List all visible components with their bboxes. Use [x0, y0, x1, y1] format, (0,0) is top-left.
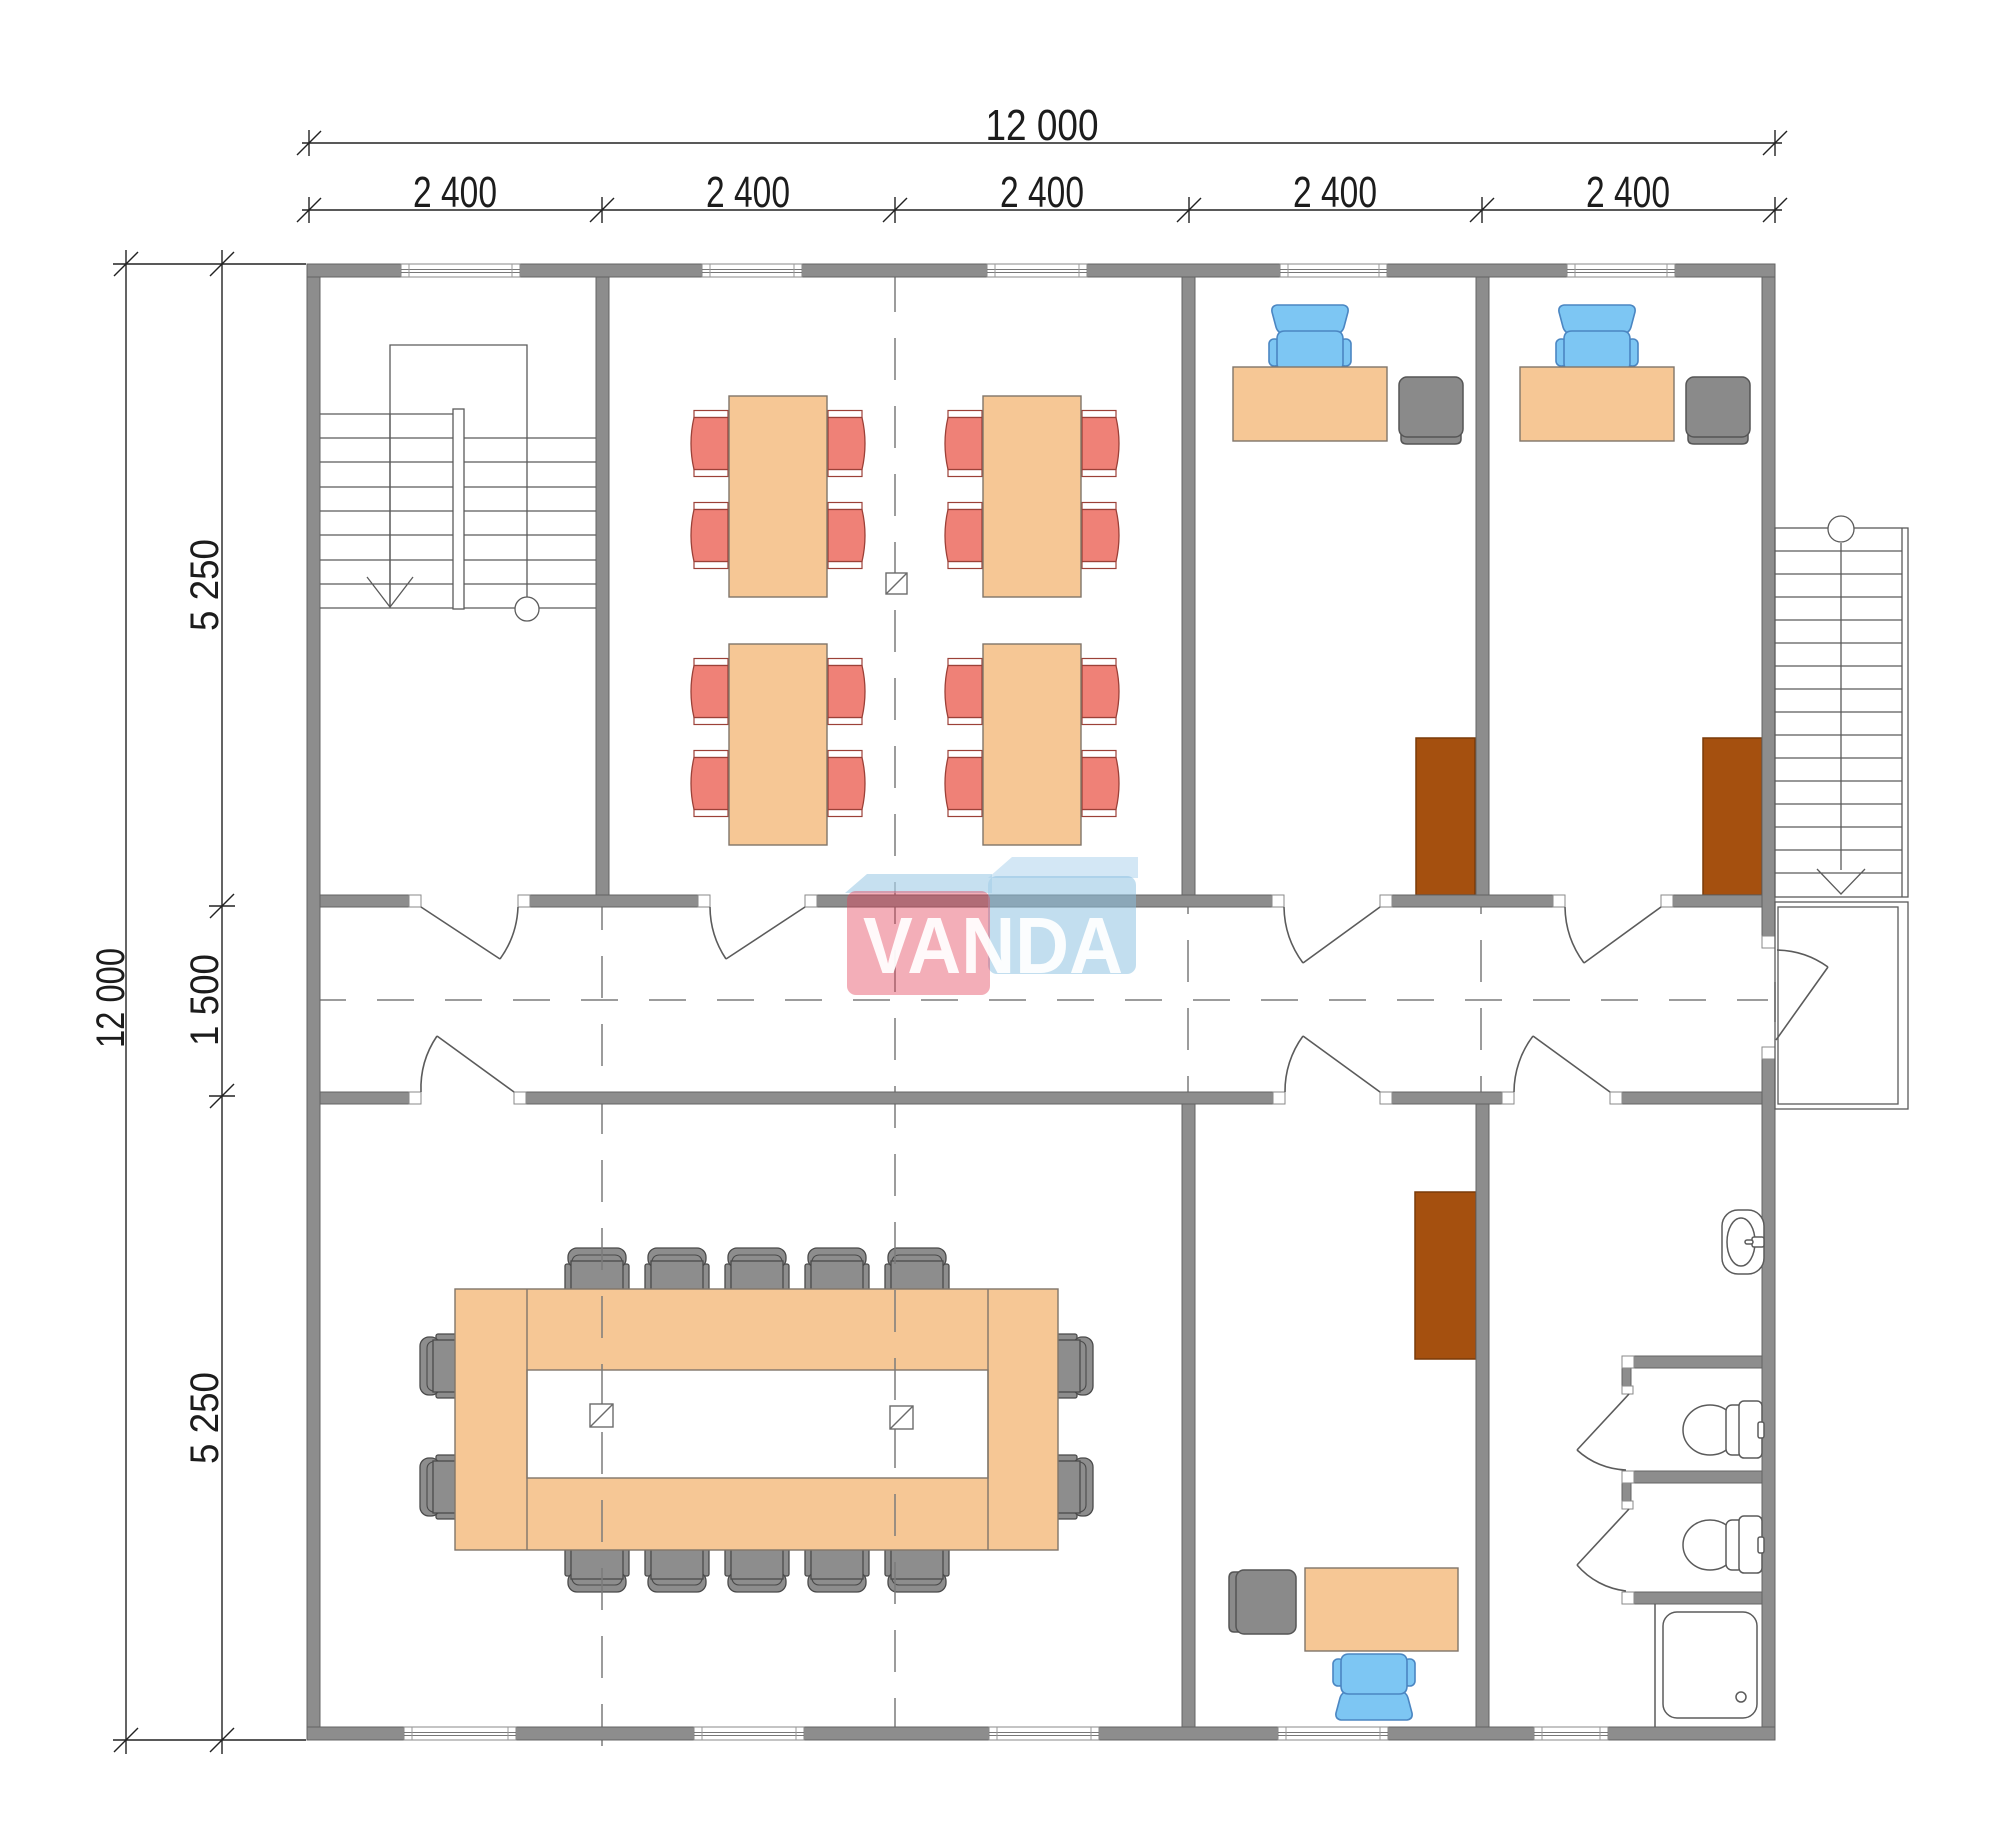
svg-text:5 250: 5 250 [183, 1372, 227, 1464]
svg-text:2 400: 2 400 [706, 168, 790, 217]
svg-text:2 400: 2 400 [413, 168, 497, 217]
svg-text:1 500: 1 500 [183, 954, 227, 1046]
svg-text:5 250: 5 250 [183, 539, 227, 631]
svg-text:2 400: 2 400 [1586, 168, 1670, 217]
svg-text:12 000: 12 000 [986, 101, 1099, 150]
svg-text:2 400: 2 400 [1000, 168, 1084, 217]
svg-text:VANDA: VANDA [863, 901, 1123, 990]
svg-text:12 000: 12 000 [89, 948, 133, 1048]
svg-text:2 400: 2 400 [1293, 168, 1377, 217]
